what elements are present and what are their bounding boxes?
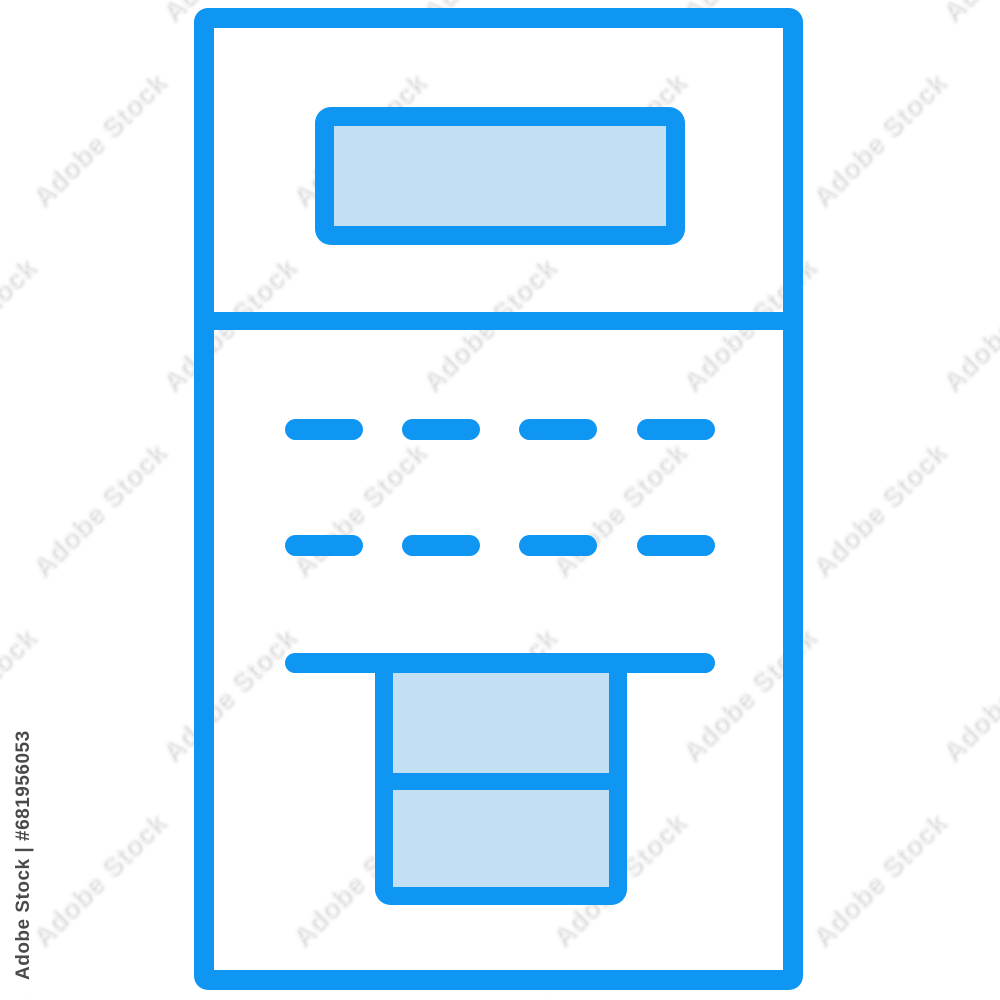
keypad-dash [519, 419, 597, 440]
keypad-dash [519, 535, 597, 556]
watermark-tile: Adobe Stock [25, 807, 171, 953]
keypad-dash [402, 535, 480, 556]
keypad-dash [402, 419, 480, 440]
watermark-tile: Adobe Stock [0, 0, 41, 29]
atm-slot-bar [285, 653, 715, 673]
watermark-tile: Adobe Stock [25, 437, 171, 583]
watermark-tile: Adobe Stock [415, 992, 561, 1000]
watermark-tile: Adobe Stock [0, 252, 41, 398]
watermark-tile: Adobe Stock [805, 807, 951, 953]
watermark-tile: Adobe Stock [0, 992, 41, 1000]
watermark-tile: Adobe Stock [155, 992, 301, 1000]
keypad-dash [637, 535, 715, 556]
keypad-dash [285, 419, 363, 440]
watermark-tile: Adobe Stock [805, 67, 951, 213]
atm-receipt-divider-line [393, 773, 609, 790]
keypad-dash [637, 419, 715, 440]
watermark-tile: Adobe Stock [675, 992, 821, 1000]
watermark-tile: Adobe Stock [935, 992, 1000, 1000]
watermark-tile: Adobe Stock [935, 622, 1000, 768]
watermark-credit: Adobe Stock | #681956053 [13, 760, 37, 980]
watermark-tile: Adobe Stock [805, 437, 951, 583]
watermark-tile: Adobe Stock [25, 67, 171, 213]
atm-screen [315, 107, 685, 245]
keypad-dash [285, 535, 363, 556]
stock-image-preview: Adobe StockAdobe StockAdobe StockAdobe S… [0, 0, 1000, 1000]
watermark-tile: Adobe Stock [935, 0, 1000, 29]
watermark-tile: Adobe Stock [935, 252, 1000, 398]
atm-panel-divider-line [204, 312, 793, 330]
